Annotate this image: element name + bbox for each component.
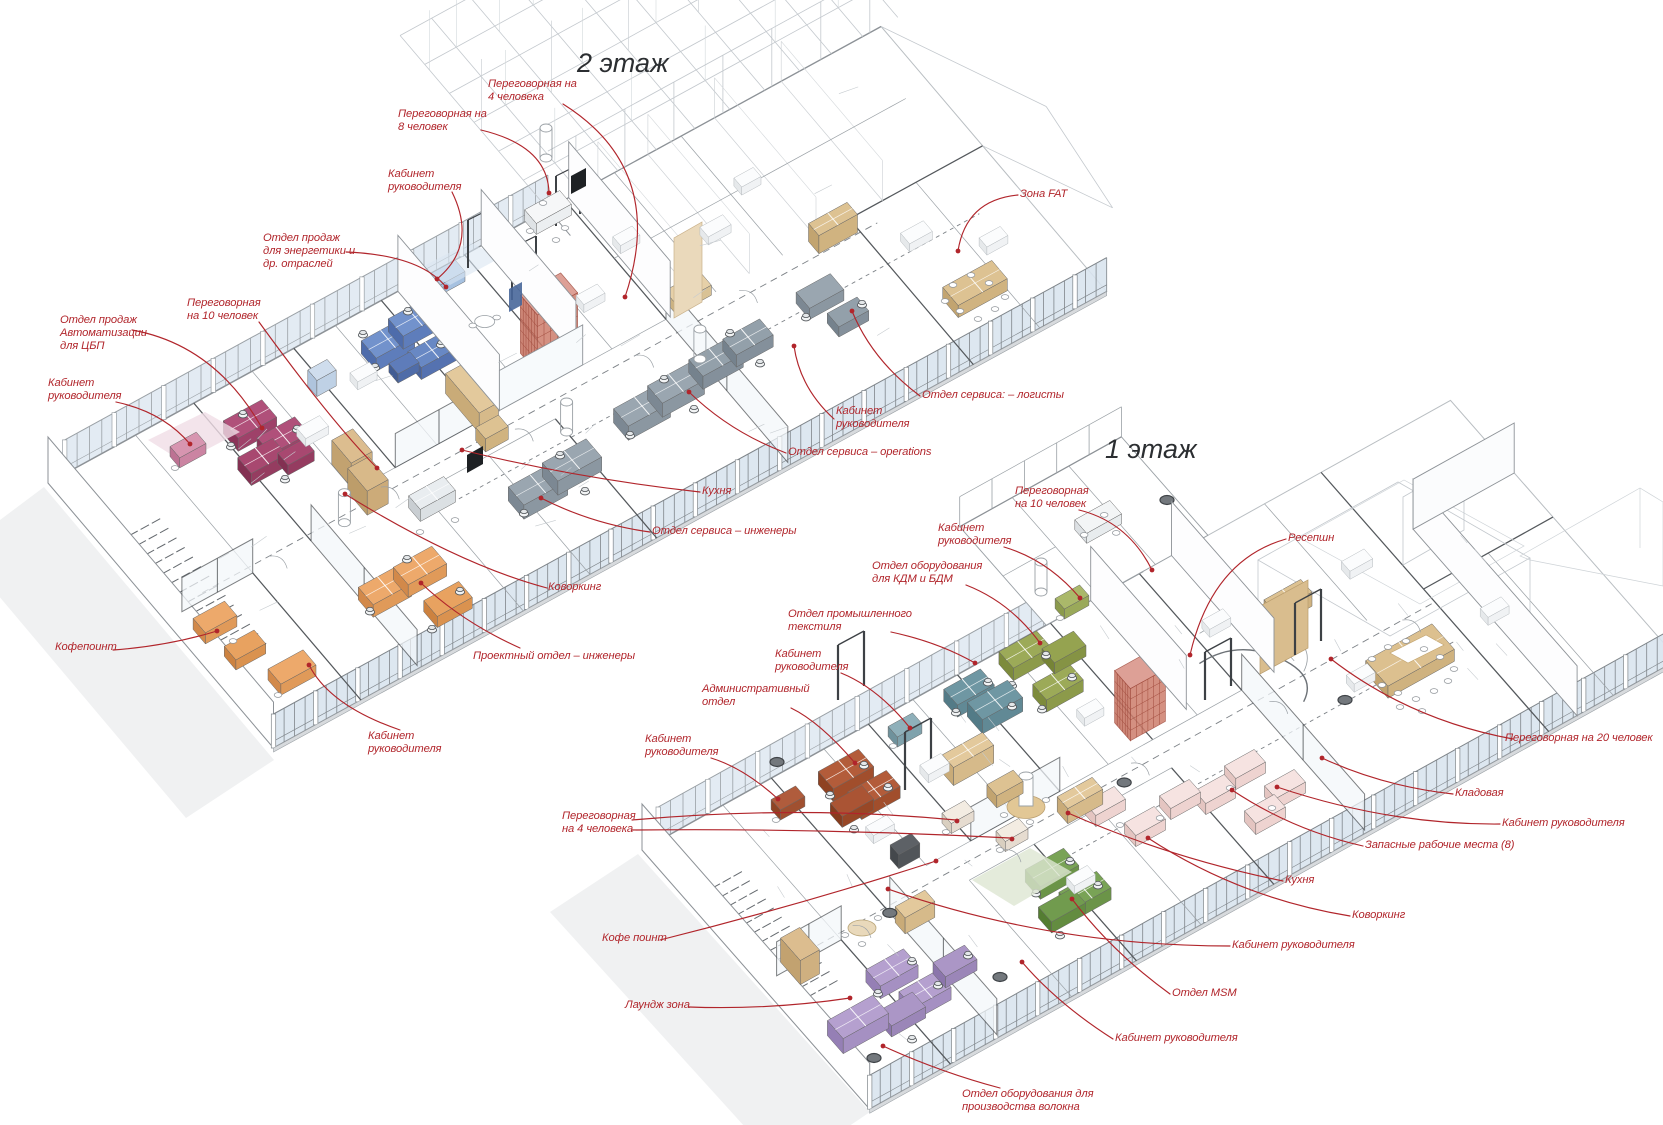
svg-text:Отдел сервиса – инженеры: Отдел сервиса – инженеры [652,525,797,537]
svg-text:производства волокна: производства волокна [962,1101,1080,1113]
svg-text:1 этаж: 1 этаж [1105,434,1198,464]
svg-text:Кабинет: Кабинет [48,377,94,389]
svg-text:Отдел промышленного: Отдел промышленного [788,608,912,620]
svg-text:Отдел сервиса – operations: Отдел сервиса – operations [788,446,932,458]
svg-text:Проектный отдел – инженеры: Проектный отдел – инженеры [473,650,636,662]
svg-text:для энергетики и: для энергетики и [263,245,355,257]
svg-text:руководителя: руководителя [774,661,849,673]
svg-text:руководителя: руководителя [835,418,910,430]
svg-text:Кабинет руководителя: Кабинет руководителя [1115,1032,1238,1044]
svg-text:Коворкинг: Коворкинг [548,581,602,593]
svg-text:Отдел оборудования: Отдел оборудования [872,560,982,572]
svg-text:8 человек: 8 человек [398,121,449,133]
svg-text:Отдел MSM: Отдел MSM [1172,987,1237,999]
svg-text:Переговорная на: Переговорная на [488,78,577,90]
svg-text:Кофепоинт: Кофепоинт [55,641,117,653]
svg-text:4 человека: 4 человека [488,91,544,103]
svg-text:Переговорная на: Переговорная на [398,108,487,120]
svg-text:Автоматизации: Автоматизации [59,327,147,339]
svg-text:2 этаж: 2 этаж [576,48,670,78]
svg-text:Зона FAT: Зона FAT [1020,188,1069,200]
svg-text:Административный: Административный [701,683,810,695]
svg-text:Ресепшн: Ресепшн [1288,532,1334,544]
svg-text:на 4 человека: на 4 человека [562,823,633,835]
svg-text:руководителя: руководителя [937,535,1012,547]
svg-text:Отдел сервиса: – логисты: Отдел сервиса: – логисты [922,389,1065,401]
svg-text:Кабинет: Кабинет [836,405,882,417]
svg-text:Лаундж зона: Лаундж зона [624,999,690,1011]
svg-text:руководителя: руководителя [644,746,719,758]
svg-text:Кофе поинт: Кофе поинт [602,932,667,944]
svg-text:руководителя: руководителя [387,181,462,193]
svg-text:руководителя: руководителя [47,390,122,402]
svg-text:Отдел продаж: Отдел продаж [263,232,341,244]
svg-text:Кабинет: Кабинет [938,522,984,534]
svg-text:Кабинет: Кабинет [368,730,414,742]
svg-text:Кабинет: Кабинет [775,648,821,660]
svg-text:для ЦБП: для ЦБП [60,340,105,352]
svg-text:отдел: отдел [702,696,736,708]
svg-text:на 10 человек: на 10 человек [1015,498,1087,510]
svg-text:Кабинет: Кабинет [388,168,434,180]
svg-text:Кабинет: Кабинет [645,733,691,745]
svg-text:для КДМ и БДМ: для КДМ и БДМ [872,573,954,585]
svg-text:текстиля: текстиля [788,621,841,633]
svg-text:Кладовая: Кладовая [1455,787,1504,799]
svg-text:Переговорная: Переговорная [1015,485,1089,497]
svg-text:на 10 человек: на 10 человек [187,310,259,322]
svg-text:Запасные рабочие места (8): Запасные рабочие места (8) [1365,839,1515,851]
svg-text:руководителя: руководителя [367,743,442,755]
svg-text:Отдел продаж: Отдел продаж [60,314,138,326]
svg-text:Кабинет руководителя: Кабинет руководителя [1232,939,1355,951]
svg-text:Отдел оборудования для: Отдел оборудования для [962,1088,1094,1100]
svg-text:Коворкинг: Коворкинг [1352,909,1406,921]
svg-text:Переговорная: Переговорная [562,810,636,822]
svg-text:Кабинет руководителя: Кабинет руководителя [1502,817,1625,829]
svg-text:Переговорная: Переговорная [187,297,261,309]
svg-text:Кухня: Кухня [702,485,731,497]
svg-text:Переговорная на 20 человек: Переговорная на 20 человек [1505,732,1653,744]
svg-text:др. отраслей: др. отраслей [263,258,333,270]
svg-text:Кухня: Кухня [1285,874,1314,886]
